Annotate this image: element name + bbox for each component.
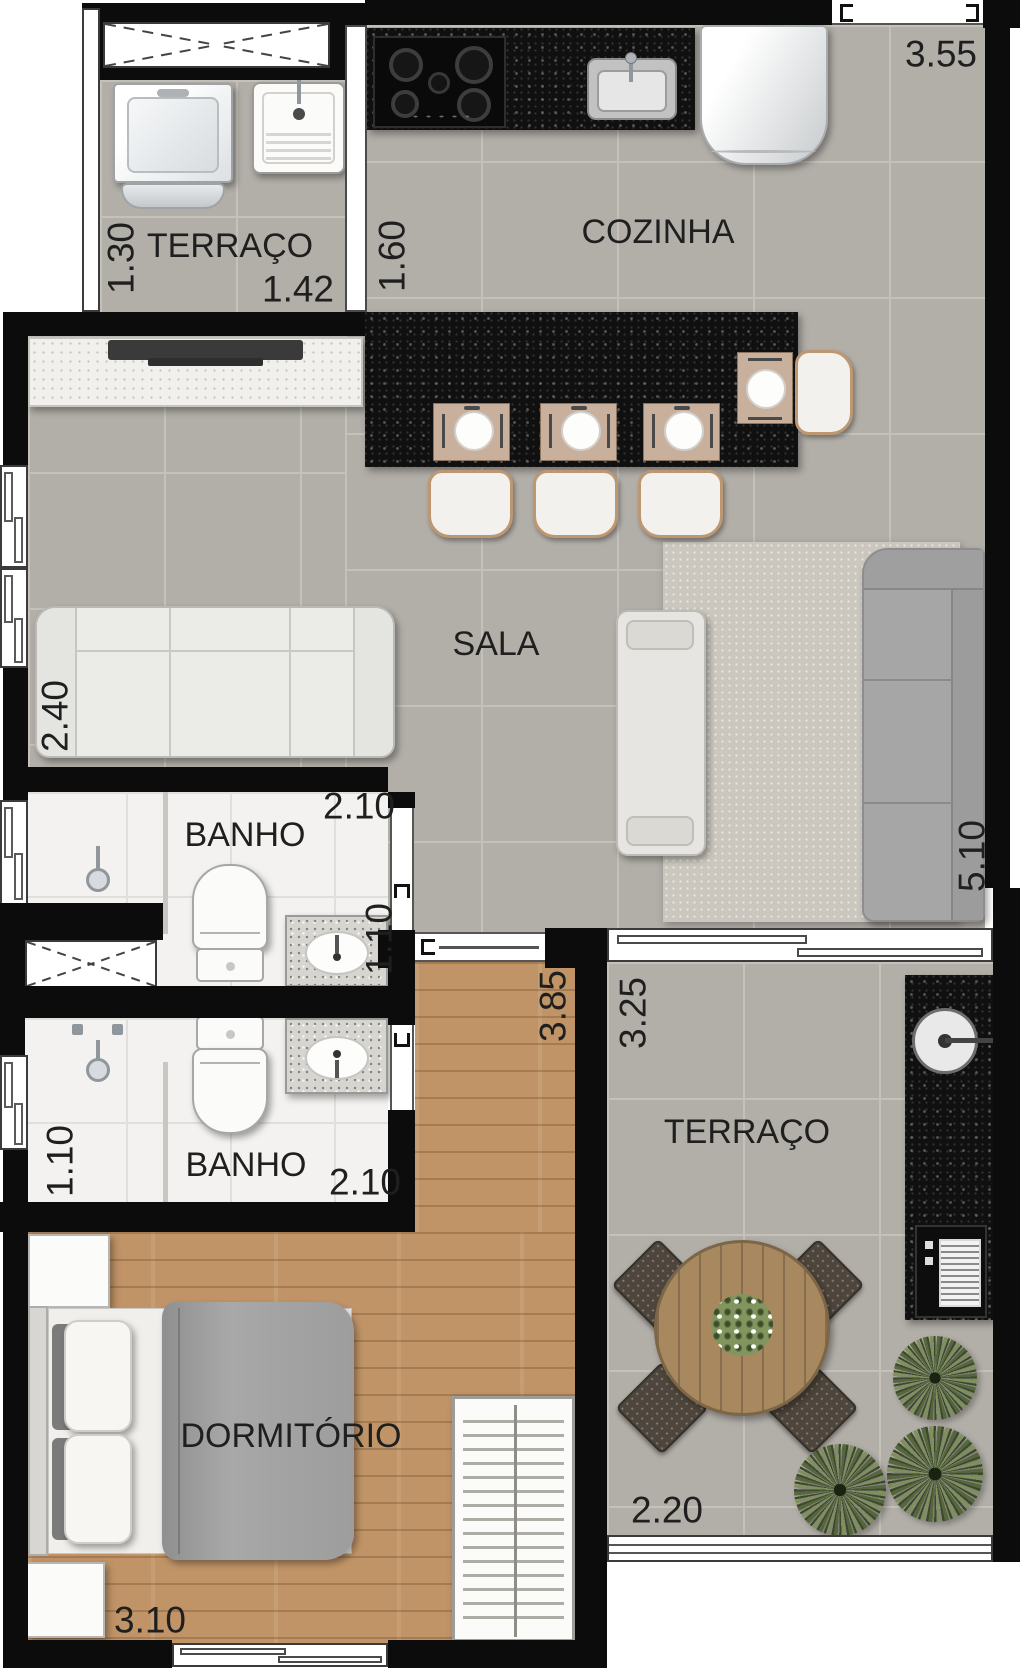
flush-button-icon: [226, 962, 235, 971]
shower-head-icon: [86, 1058, 110, 1082]
sliding-panel: [797, 948, 983, 957]
refrigerator-icon: [700, 25, 828, 165]
terrace-sink-icon: [912, 1008, 978, 1074]
dim-terrace-height: 3.25: [615, 977, 652, 1049]
bed-headboard: [28, 1306, 48, 1556]
wall-under-service: [3, 312, 365, 336]
plate-icon: [454, 411, 494, 451]
closet: [452, 1396, 575, 1642]
plant-icon: [893, 1336, 977, 1420]
plant-icon: [887, 1426, 983, 1522]
dim-terrace-width: 2.20: [631, 1492, 703, 1529]
kitchen-sink-icon: [587, 58, 677, 120]
dim-bath-bottom-width: 2.10: [329, 1164, 401, 1201]
grill-grate-icon: [939, 1239, 981, 1307]
door-jamb-icon: [421, 939, 435, 955]
sofa-cushion-line: [169, 608, 171, 756]
window-sash: [4, 1062, 13, 1108]
washing-machine-icon: [113, 83, 233, 183]
shower-partition: [163, 792, 168, 934]
fork-icon: [607, 414, 610, 448]
knife-icon: [549, 414, 552, 448]
burner-icon: [389, 48, 423, 82]
dim-living-left: 2.40: [37, 680, 74, 752]
window-sash: [4, 807, 13, 858]
closet-rod-icon: [514, 1405, 517, 1637]
faucet-icon: [335, 1060, 339, 1078]
dim-living-right: 5.10: [954, 820, 991, 892]
window-sash: [14, 517, 23, 563]
drain-icon: [293, 108, 305, 120]
fork-icon: [500, 414, 503, 448]
chaise-roll: [626, 620, 694, 650]
bar-stool-icon: [428, 470, 513, 538]
room-label-kitchen: COZINHA: [582, 215, 735, 249]
plate-icon: [746, 369, 786, 409]
plant-icon: [794, 1444, 886, 1536]
toilet-tank-icon: [196, 948, 264, 982]
dim-service-terrace-height: 1.30: [103, 222, 140, 294]
sofa-cushion-line: [289, 608, 291, 756]
wall-right-terrace: [993, 888, 1020, 1562]
room-label-terrace: TERRAÇO: [664, 1115, 830, 1149]
tv-stand-icon: [148, 358, 263, 366]
service-window-icon: [103, 22, 330, 68]
cooktop-icon: [373, 36, 506, 128]
bath-bottom-door-opening: [390, 1025, 414, 1110]
wall-bottom-mid: [388, 1640, 607, 1668]
spoon-icon: [464, 406, 480, 410]
window-sash: [4, 575, 13, 623]
tv-icon: [108, 340, 303, 360]
plate-icon: [664, 411, 704, 451]
toilet-seat-line: [200, 932, 260, 934]
nightstand: [28, 1234, 110, 1308]
room-label-bedroom: DORMITÓRIO: [181, 1419, 402, 1453]
shower-handle-icon: [112, 1024, 123, 1035]
place-setting-icon: [540, 403, 617, 461]
dim-bath-top-width: 2.10: [323, 788, 395, 825]
living-window-icon: [0, 465, 28, 568]
place-setting-icon: [643, 403, 720, 461]
room-label-service-terrace: TERRAÇO: [147, 229, 313, 263]
sliding-panel: [617, 935, 807, 944]
burner-icon: [428, 72, 450, 94]
door-leaf-line: [439, 946, 539, 949]
refrigerator-door-line: [710, 150, 816, 153]
sofa-backrest: [77, 608, 353, 652]
grill-knob-icon: [925, 1257, 933, 1265]
washer-lid-icon: [127, 97, 219, 173]
dim-bedroom-height: 3.85: [535, 970, 572, 1042]
place-setting-icon: [737, 352, 793, 424]
toilet-bowl-icon: [192, 1048, 268, 1134]
wall-between-showers: [0, 903, 163, 940]
bar-stool-icon: [795, 350, 853, 435]
entry-door-opening: [832, 2, 983, 25]
living-window-icon: [0, 568, 28, 668]
partition-service-kitchen: [345, 25, 367, 312]
shower-head-icon: [86, 868, 110, 892]
dim-bath-bottom-height: 1.10: [42, 1125, 79, 1197]
dim-bath-top-height: 1.10: [361, 903, 398, 975]
chaise-bench: [616, 610, 706, 856]
door-jamb-icon: [840, 4, 853, 22]
sofa-cushion-line: [864, 679, 953, 681]
room-label-bath-bottom: BANHO: [186, 1148, 307, 1182]
window-x-glyph: [27, 942, 155, 986]
bath-window-icon: [0, 800, 28, 905]
door-jamb-icon: [966, 4, 979, 22]
bath-window-icon: [0, 1055, 28, 1150]
sofa-armrest: [353, 608, 393, 756]
grill-icon: [915, 1225, 987, 1318]
wall-between-baths: [0, 986, 412, 1018]
bath-vent-window-icon: [25, 940, 157, 988]
sofa-white: [35, 606, 395, 758]
grill-knob-icon: [925, 1241, 933, 1249]
toilet-tank-icon: [196, 1016, 264, 1050]
nightstand: [25, 1562, 105, 1638]
flush-button-icon: [226, 1030, 235, 1039]
window-sash: [14, 618, 23, 663]
room-label-bath-top: BANHO: [185, 818, 306, 852]
dim-kitchen-width: 3.55: [905, 36, 977, 73]
dim-bedroom-width: 3.10: [114, 1602, 186, 1639]
faucet-icon: [297, 78, 301, 104]
railing-line: [609, 1552, 991, 1554]
sofa-cushion-line: [864, 802, 953, 804]
wall-bath-bedroom: [0, 1202, 412, 1232]
wall-kitchen-top: [365, 0, 832, 25]
spoon-icon: [571, 406, 587, 410]
fork-icon: [710, 414, 713, 448]
faucet-base-icon: [625, 52, 637, 64]
pillow-icon: [64, 1434, 132, 1544]
wall-service-left: [82, 8, 100, 312]
window-x-glyph: [105, 24, 328, 66]
faucet-icon: [335, 935, 339, 953]
bedroom-sliding-window: [172, 1643, 388, 1667]
drain-icon: [333, 1050, 341, 1058]
dim-service-terrace-width: 1.42: [262, 271, 334, 308]
room-label-living: SALA: [453, 627, 540, 661]
window-sash: [14, 1103, 23, 1145]
bedroom-door-opening: [415, 932, 545, 962]
wall-bedroom-terrace: [575, 962, 607, 1668]
spoon-icon: [674, 406, 690, 410]
door-jamb-icon: [394, 1033, 410, 1047]
terrace-railing: [607, 1535, 993, 1562]
toilet-seat-line: [200, 1062, 260, 1064]
dim-kitchen-height: 1.60: [374, 220, 411, 292]
drain-icon: [333, 953, 341, 961]
toilet-bowl-icon: [192, 864, 268, 950]
floor-plan: TERRAÇO 1.30 1.42 COZINHA 3.55 1.60 SALA…: [0, 0, 1024, 1670]
door-jamb-icon: [394, 884, 410, 898]
sliding-panel: [278, 1656, 382, 1663]
window-sash: [4, 472, 13, 522]
burner-icon: [455, 46, 493, 84]
table-plant-icon: [711, 1294, 773, 1356]
laundry-sink-icon: [252, 82, 345, 174]
wall-right: [985, 25, 1010, 888]
wall-left-upper: [3, 312, 28, 465]
cooktop-knobs-icon: [409, 114, 469, 119]
knife-icon: [442, 414, 445, 448]
knife-icon: [652, 414, 655, 448]
washer-base-icon: [121, 183, 225, 209]
bar-stool-icon: [533, 470, 618, 538]
knife-icon: [748, 358, 782, 361]
shower-partition: [163, 1062, 168, 1202]
washboard-ridges: [266, 128, 331, 160]
fork-icon: [748, 417, 782, 420]
wall-corner-top-right: [983, 0, 1020, 28]
pillow-icon: [64, 1320, 132, 1432]
plate-icon: [561, 411, 601, 451]
wall-bottom-left: [3, 1640, 172, 1668]
vanity-top: [285, 1018, 388, 1094]
sliding-panel: [180, 1648, 286, 1655]
chaise-roll: [626, 816, 694, 846]
bar-stool-icon: [638, 470, 723, 538]
terrace-sliding-door: [607, 928, 993, 962]
window-sash: [14, 853, 23, 900]
place-setting-icon: [433, 403, 510, 461]
shower-handle-icon: [72, 1024, 83, 1035]
railing-line: [609, 1544, 991, 1546]
washer-handle-icon: [157, 89, 189, 97]
faucet-icon: [945, 1038, 997, 1043]
sofa-armrest: [864, 550, 983, 590]
